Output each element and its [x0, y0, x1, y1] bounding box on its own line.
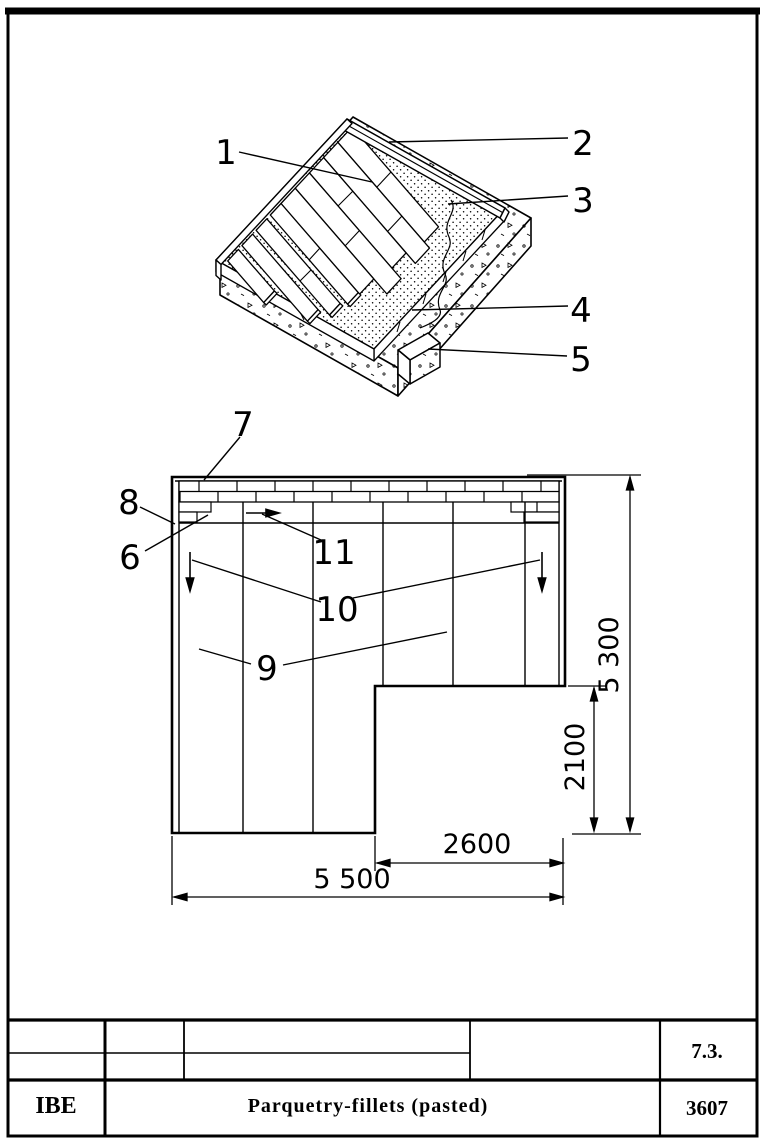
part-label-6: 6 [119, 538, 141, 578]
drawing-title-text: Parquetry-fillets (pasted) [248, 1095, 489, 1117]
isometric-detail-figure: 1 2 3 4 5 [215, 117, 594, 396]
laying-direction-arrows [186, 509, 545, 591]
part-label-5: 5 [570, 340, 592, 380]
part-label-4: 4 [570, 291, 592, 331]
part-label-3: 3 [572, 181, 594, 221]
part-label-10: 10 [315, 590, 358, 630]
part-label-8: 8 [118, 483, 140, 523]
section-number-text: 7.3. [691, 1039, 723, 1063]
room-outline [172, 477, 565, 833]
dim-total-height: 5 300 [594, 616, 625, 693]
part-label-2: 2 [572, 124, 594, 164]
sheet-number-text: 3607 [686, 1096, 728, 1120]
title-block: IBE Parquetry-fillets (pasted) 7.3. 3607 [8, 1020, 757, 1135]
field-panel-joints [243, 502, 525, 833]
part-label-1: 1 [215, 133, 237, 173]
part-label-11: 11 [312, 533, 355, 573]
dim-recess-height: 2100 [560, 723, 591, 792]
floor-plan-figure: 7 8 6 11 10 9 [118, 405, 641, 905]
dim-total-width: 5 500 [313, 864, 390, 895]
drawing-sheet-page: 1 2 3 4 5 [0, 0, 765, 1145]
org-text: IBE [35, 1093, 76, 1119]
part-label-9: 9 [256, 649, 278, 689]
part-label-7: 7 [232, 405, 254, 445]
technical-drawing: 1 2 3 4 5 [0, 0, 765, 1145]
border-fillet-strip [179, 481, 559, 523]
dim-recess-width: 2600 [443, 829, 512, 860]
